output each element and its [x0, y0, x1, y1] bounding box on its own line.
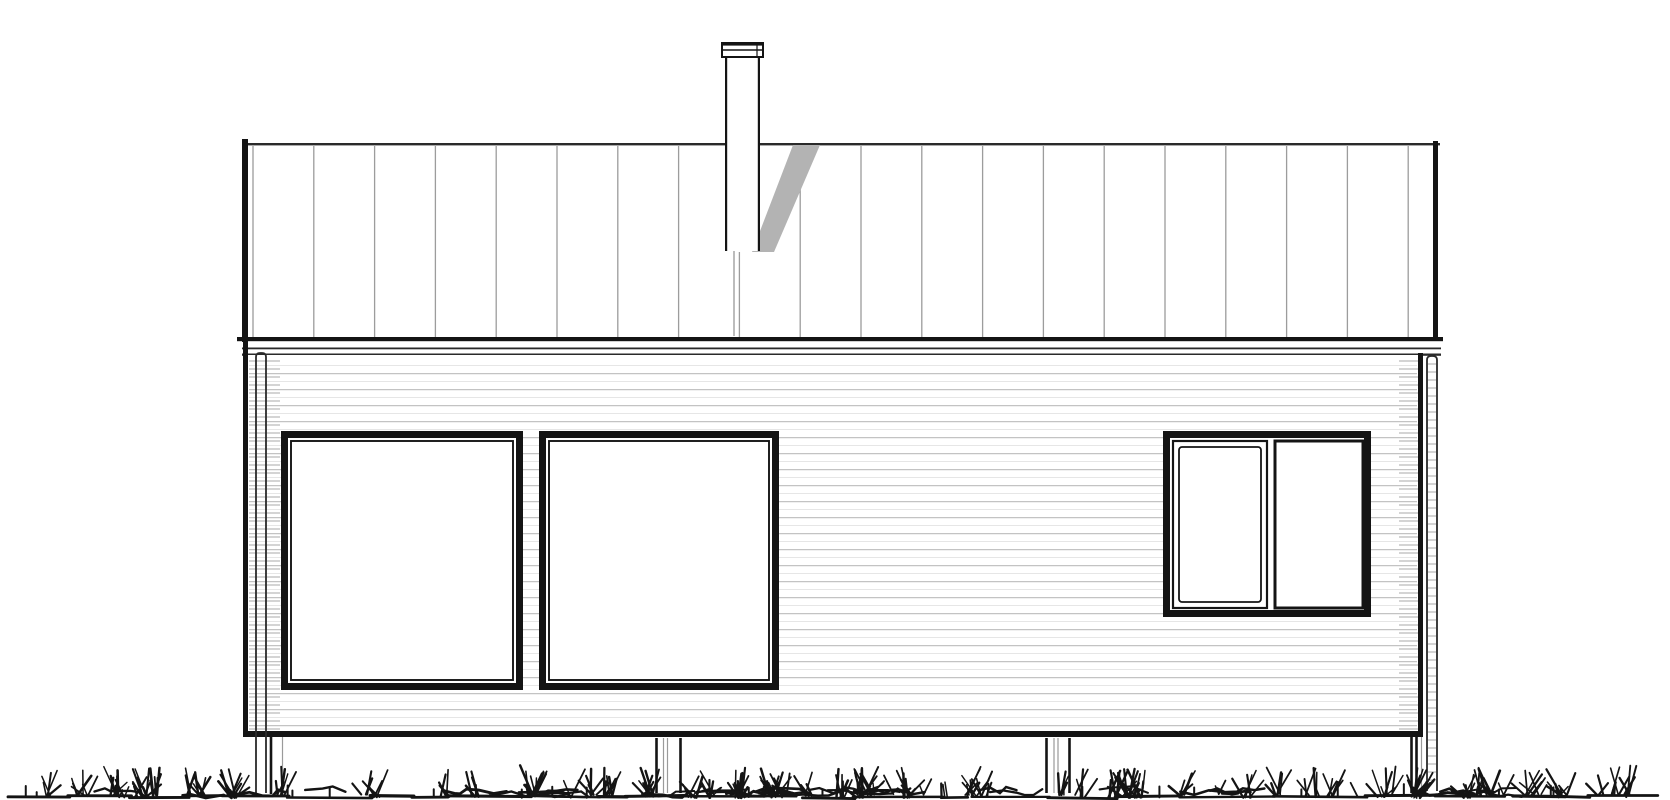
- chimney: [722, 43, 820, 336]
- post: [657, 738, 681, 793]
- window-left: [281, 431, 523, 690]
- elevation-canvas: [0, 0, 1670, 800]
- architectural-elevation-drawing: [0, 0, 1670, 800]
- window-middle: [539, 431, 779, 690]
- roof: [237, 139, 1443, 356]
- window-right: [1163, 431, 1371, 617]
